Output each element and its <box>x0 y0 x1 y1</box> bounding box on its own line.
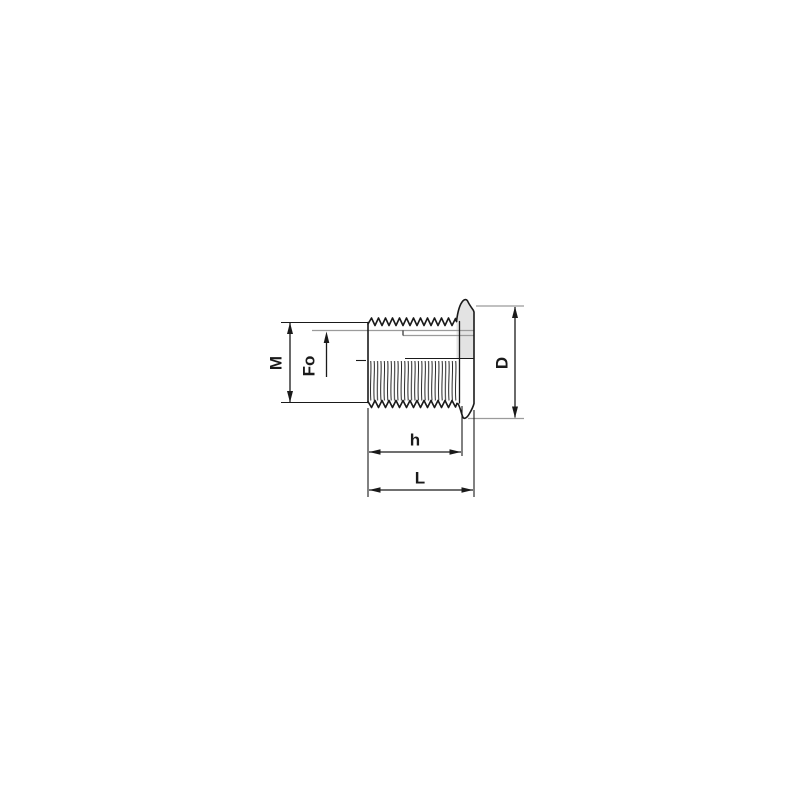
d-arrow-up <box>512 307 518 319</box>
dim-label-h: h <box>410 432 420 449</box>
m-arrow-up <box>287 323 293 335</box>
d-arrow-down <box>512 407 518 419</box>
dim-label-fo: Fo <box>301 356 318 377</box>
m-arrow-down <box>287 391 293 403</box>
construction-lines <box>281 323 474 498</box>
threaded-insert-drawing <box>0 0 800 800</box>
internal-thread-band <box>369 361 458 401</box>
h-arrow-right <box>450 449 462 455</box>
dim-label-m: M <box>268 356 285 370</box>
external-thread-bottom <box>368 401 457 408</box>
l-arrow-left <box>369 487 381 493</box>
technical-drawing-canvas: M Fo D h L <box>0 0 800 800</box>
dim-label-d: D <box>494 357 511 369</box>
l-arrow-right <box>462 487 474 493</box>
h-arrow-left <box>369 449 381 455</box>
external-thread-top <box>368 318 457 326</box>
fo-arrow-up <box>324 332 330 344</box>
dim-label-l: L <box>415 470 425 487</box>
